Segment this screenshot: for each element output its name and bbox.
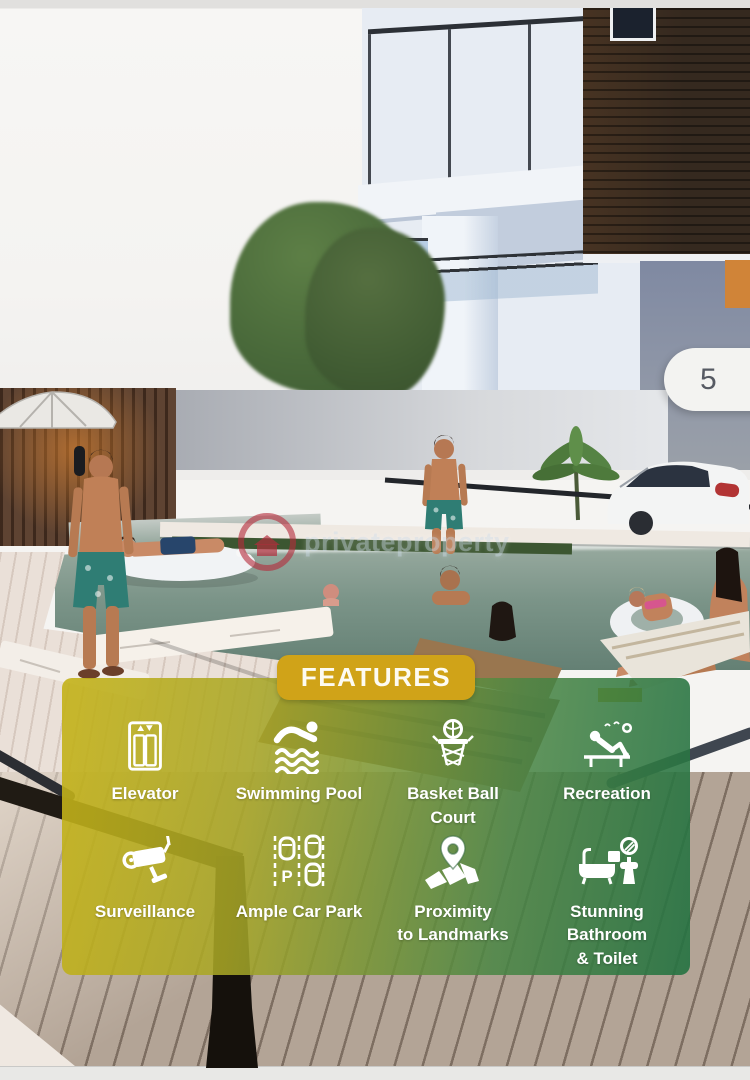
- elevator-icon: [118, 718, 172, 774]
- surveillance-icon: [115, 836, 175, 892]
- swimmer-child: [323, 584, 339, 606]
- listing-photo-screen: privateproperty 5 FEATURES Elevator: [0, 0, 750, 1080]
- car-park-icon: P: [269, 832, 329, 892]
- watermark-text: privateproperty: [304, 527, 510, 558]
- parked-car: [608, 462, 750, 535]
- feature-elevator: Elevator: [68, 712, 222, 830]
- feature-recreation: Recreation: [530, 712, 684, 830]
- basketball-court-icon: [425, 718, 481, 774]
- feature-car-park: P Ample Car Park: [222, 830, 376, 971]
- feature-landmarks: Proximity to Landmarks: [376, 830, 530, 971]
- feature-basketball-court: Basket Ball Court: [376, 712, 530, 830]
- swimmer-woman: [489, 602, 516, 642]
- palm-plant: [531, 426, 621, 520]
- svg-text:P: P: [281, 867, 292, 886]
- feature-bathroom: Stunning Bathroom & Toilet: [530, 830, 684, 971]
- recreation-icon: [578, 718, 636, 774]
- photo-count-value: 5: [664, 363, 717, 397]
- watermark-house-logo-icon: [238, 513, 296, 571]
- watermark: privateproperty: [238, 510, 548, 574]
- parasol: [0, 392, 116, 428]
- landmarks-icon: [423, 834, 483, 892]
- features-grid: Elevator Swimming Pool: [62, 678, 690, 975]
- property-photo[interactable]: privateproperty: [0, 0, 750, 480]
- photo-count-badge[interactable]: 5: [664, 348, 750, 411]
- bathroom-icon: [575, 836, 639, 892]
- feature-swimming-pool: Swimming Pool: [222, 712, 376, 830]
- feature-surveillance: Surveillance: [68, 830, 222, 971]
- swimming-pool-icon: [271, 716, 327, 774]
- features-panel: FEATURES Elevator: [62, 678, 690, 975]
